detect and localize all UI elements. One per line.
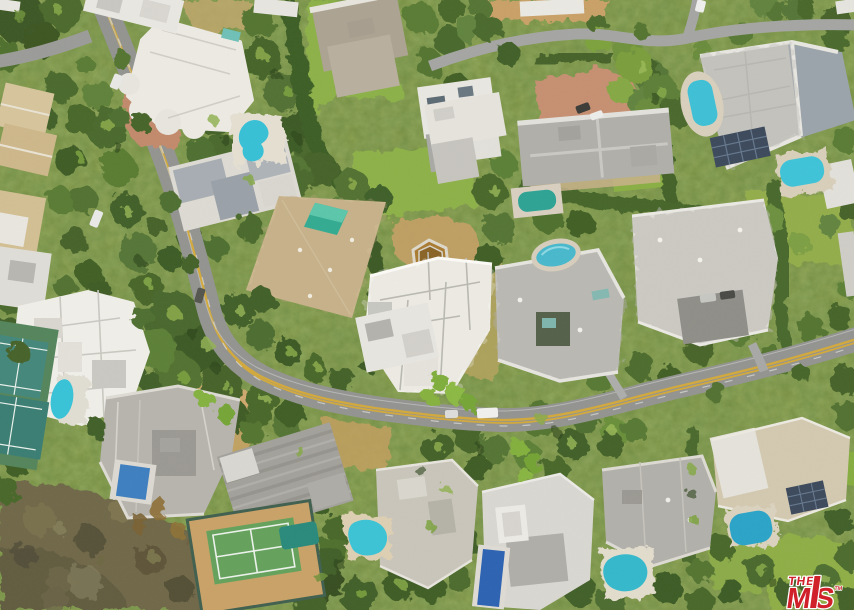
svg-text:TM: TM — [834, 586, 843, 592]
svg-text:M: M — [785, 583, 814, 610]
